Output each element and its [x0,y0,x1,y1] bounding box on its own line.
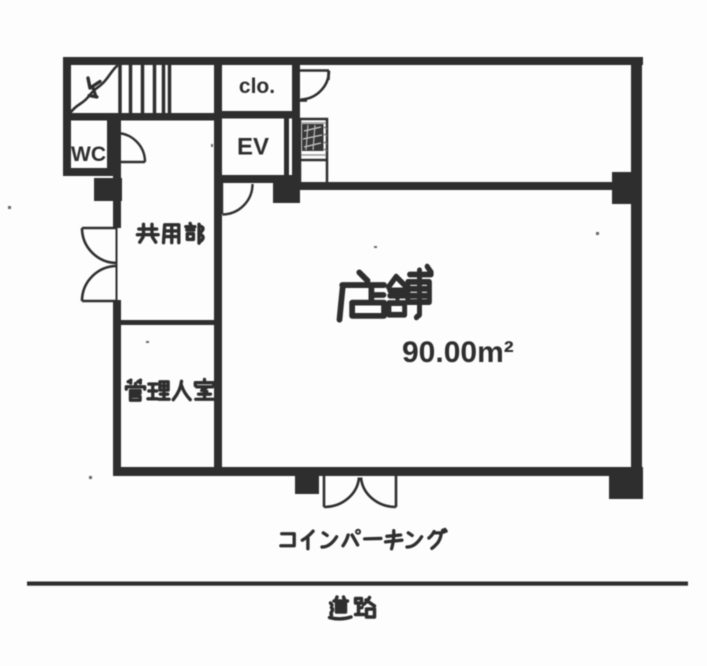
svg-text:clo.: clo. [239,75,275,98]
svg-text:90.00m²: 90.00m² [402,336,514,369]
svg-text:EV: EV [237,134,269,161]
svg-text:WC: WC [71,143,106,166]
